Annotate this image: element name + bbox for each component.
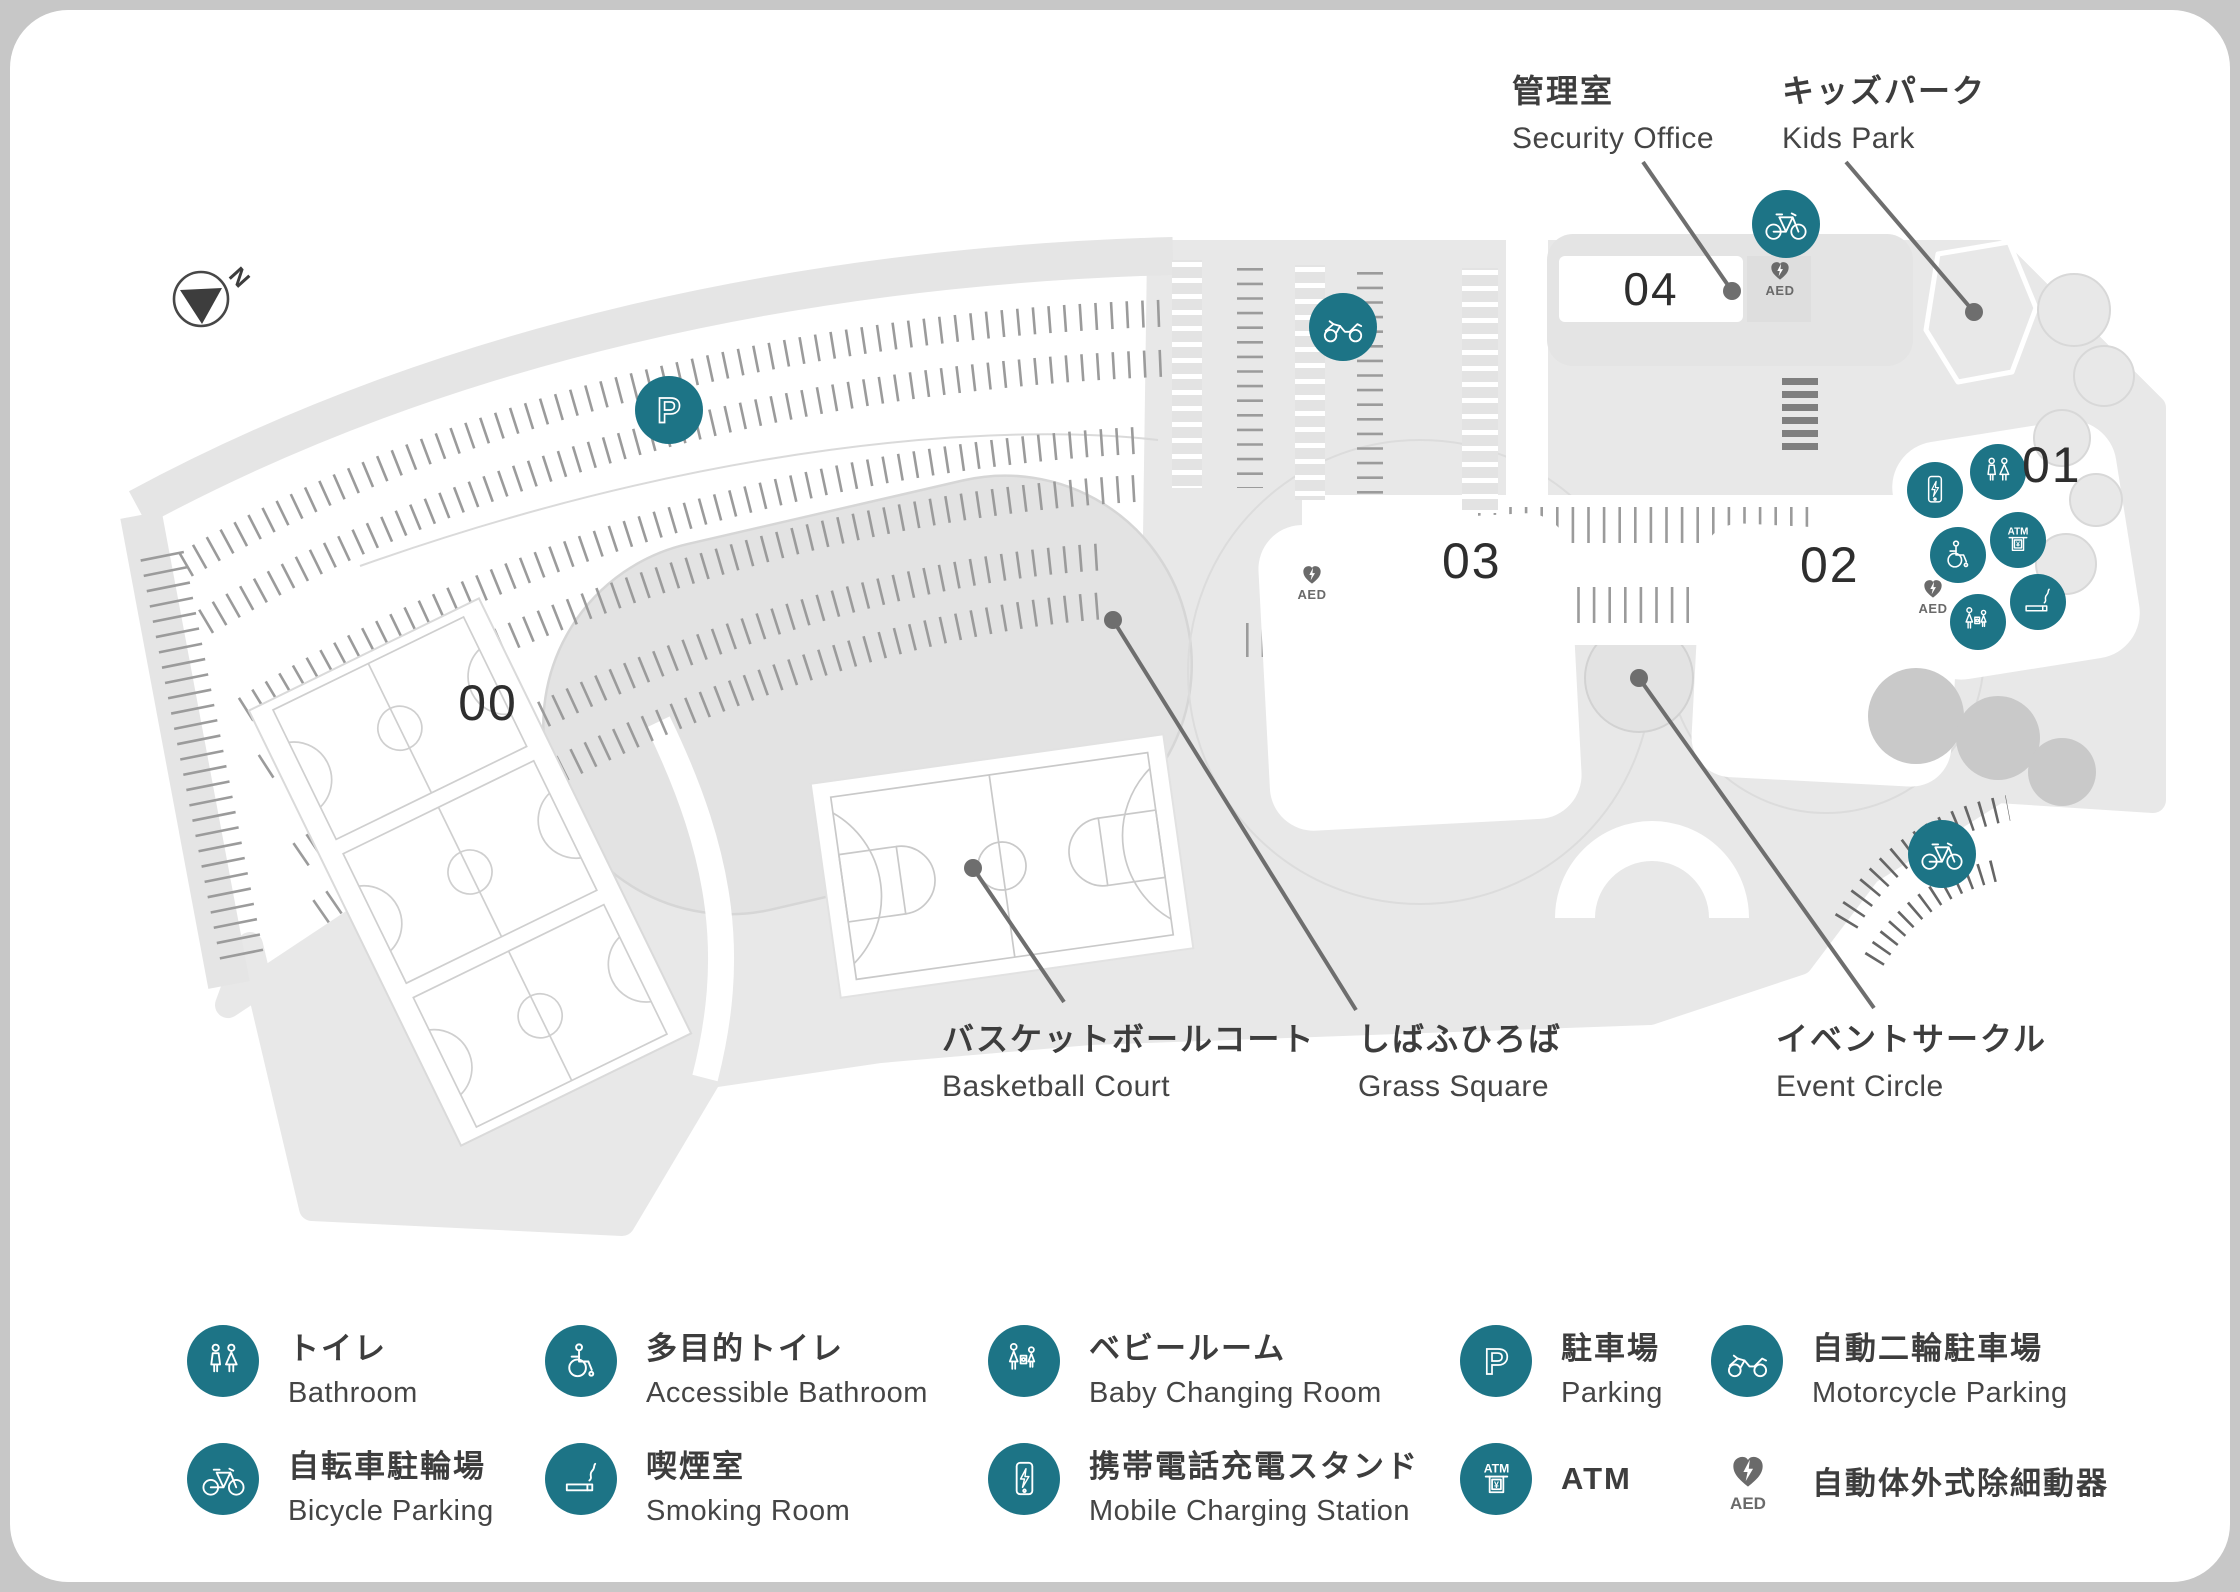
compass: N	[168, 266, 258, 346]
bicycle-icon	[1919, 831, 1965, 877]
aed-icon	[1726, 1450, 1770, 1494]
callout-grass-square: しばふひろば Grass Square	[1358, 1014, 1562, 1104]
parking-marker	[635, 376, 703, 444]
accessible-bathroom-icon	[545, 1325, 617, 1397]
bathroom-marker	[1970, 444, 2026, 500]
atm-marker	[1990, 512, 2046, 568]
aed-marker-04: AED	[1758, 258, 1802, 298]
bathroom-icon	[1979, 453, 2017, 491]
callout-kids-park: キッズパーク Kids Park	[1782, 66, 1986, 156]
mobile-charging-icon	[988, 1443, 1060, 1515]
baby-room-marker	[1950, 594, 2006, 650]
callout-basketball-court: バスケットボールコート Basketball Court	[942, 1014, 1315, 1104]
map-card: N AED AED AED 00 01 02 03 04 管理室	[10, 10, 2230, 1582]
mobile-charging-icon	[1916, 471, 1954, 509]
aed-marker-01: AED	[1911, 576, 1955, 616]
bicycle-icon	[187, 1443, 259, 1515]
motorcycle-icon	[1711, 1325, 1783, 1397]
motorcycle-parking-marker	[1309, 293, 1377, 361]
parking-icon	[646, 387, 692, 433]
bicycle-parking-marker-east	[1908, 820, 1976, 888]
callout-security-office: 管理室 Security Office	[1512, 66, 1714, 156]
legend-item-aed: 自動体外式除細動器	[1812, 1458, 2109, 1503]
aed-label: AED	[1758, 283, 1802, 298]
smoking-room-icon	[2019, 583, 2057, 621]
aed-icon	[1299, 562, 1325, 588]
bicycle-icon	[1763, 201, 1809, 247]
atm-icon	[1460, 1443, 1532, 1515]
aed-label: AED	[1290, 587, 1334, 602]
compass-icon	[168, 266, 234, 332]
mobile-charging-marker	[1907, 462, 1963, 518]
accessible-bathroom-marker	[1930, 527, 1986, 583]
aed-icon	[1920, 576, 1946, 602]
legend-item-aed-icon: AED	[1716, 1450, 1780, 1514]
building-label-02: 02	[1800, 536, 1860, 594]
building-label-00: 00	[438, 674, 538, 732]
smoking-room-icon	[545, 1443, 617, 1515]
building-label-04: 04	[1559, 262, 1743, 316]
aed-icon	[1767, 258, 1793, 284]
building-03-shape	[1256, 511, 1584, 833]
motorcycle-icon	[1320, 304, 1366, 350]
accessible-bathroom-icon	[1939, 536, 1977, 574]
baby-room-icon	[1959, 603, 1997, 641]
callout-event-circle: イベントサークル Event Circle	[1776, 1014, 2047, 1104]
building-label-01: 01	[2022, 436, 2082, 494]
building-label-03: 03	[1442, 532, 1502, 590]
aed-marker-03: AED	[1290, 562, 1334, 602]
bicycle-parking-marker-north	[1752, 190, 1820, 258]
smoking-room-marker	[2010, 574, 2066, 630]
parking-icon	[1460, 1325, 1532, 1397]
atm-icon	[1999, 521, 2037, 559]
bathroom-icon	[187, 1325, 259, 1397]
baby-room-icon	[988, 1325, 1060, 1397]
aed-label: AED	[1716, 1494, 1780, 1514]
aed-label: AED	[1911, 601, 1955, 616]
